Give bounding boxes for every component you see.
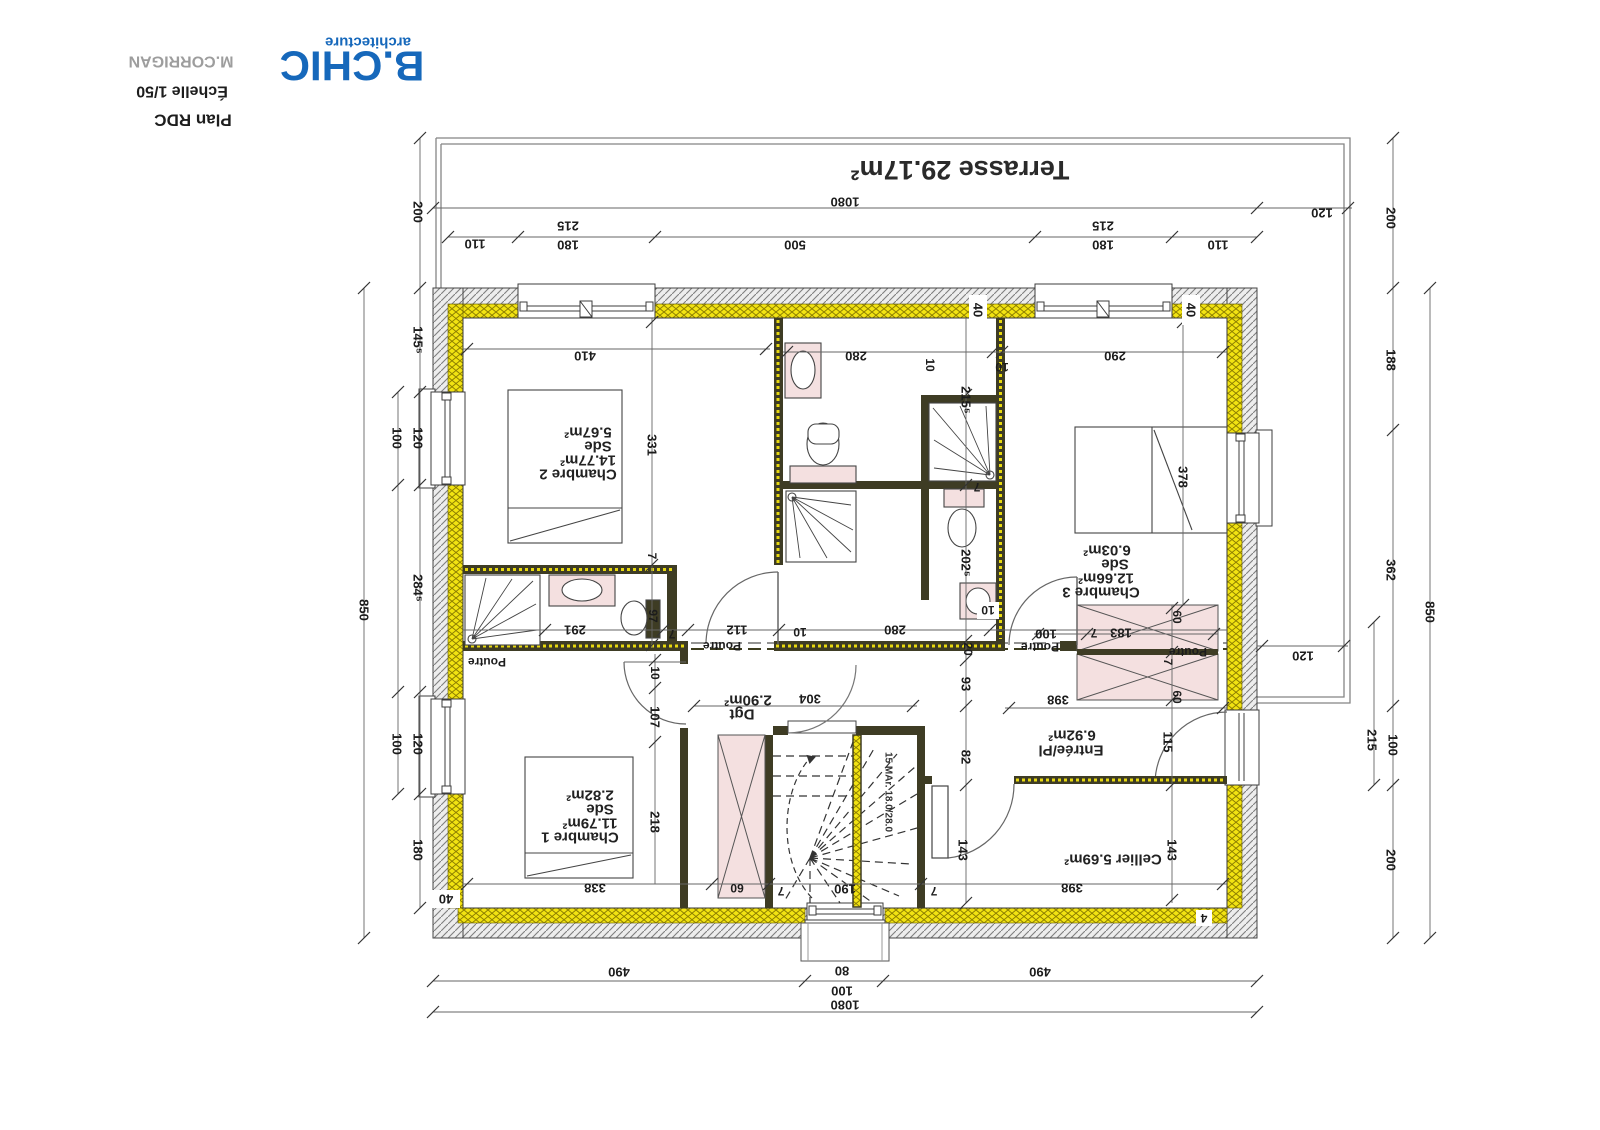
dim: 331	[645, 434, 660, 456]
dim: 10	[648, 666, 662, 680]
shower-central	[786, 491, 856, 562]
dim: 40	[439, 892, 453, 907]
closet-entree-lower	[1077, 654, 1218, 700]
dim: 100	[831, 984, 853, 999]
svg-text:Chambre 3: Chambre 3	[1062, 584, 1140, 601]
dim: 40	[971, 303, 986, 317]
room-label-entree: 6.92m² Entrée/Pl	[1038, 727, 1103, 759]
dim: 280	[884, 623, 906, 638]
vanity-sde2	[549, 575, 615, 606]
dim: 115	[1161, 732, 1176, 753]
beam-label: Poutre	[468, 655, 506, 669]
scanned-floor-plan-page: 15 MAr. 18.0/28.0	[0, 0, 1600, 1130]
dim: 202⁵	[959, 549, 974, 577]
dim: 80	[835, 964, 849, 979]
dim: 60	[1170, 690, 1184, 704]
stair-spine-wall	[853, 735, 861, 907]
svg-text:Chambre 2: Chambre 2	[539, 466, 617, 483]
dim: 188	[1384, 349, 1399, 371]
dim: 215⁵	[959, 386, 974, 414]
dim-top-120: 120	[1311, 206, 1333, 221]
stair-walk-line	[787, 758, 812, 898]
dim: 7	[930, 884, 937, 898]
dim: 1080	[831, 998, 860, 1013]
bed-chambre3	[1075, 427, 1227, 533]
toilet-sde3	[944, 489, 984, 547]
dim: 10	[793, 625, 807, 639]
room-label-terrasse: Terrasse 29.17m²	[851, 155, 1070, 185]
closet-hall	[718, 735, 765, 898]
dim: 143	[1165, 839, 1180, 861]
beam-label: Poutre	[703, 639, 741, 653]
dim: 362	[1384, 559, 1399, 581]
stair-door-leaf	[788, 721, 856, 733]
dim: 60	[730, 881, 744, 895]
dim: 120	[1292, 649, 1314, 664]
dim: 180	[1092, 238, 1114, 253]
dim: 291	[564, 623, 586, 638]
dim: 215	[1092, 219, 1114, 234]
entrance-door-bottom	[801, 903, 889, 961]
shower-sde3	[929, 403, 996, 481]
partition-chambre1-right	[680, 728, 688, 908]
dim: 97	[646, 609, 660, 623]
dim: 107	[648, 706, 663, 728]
scale-label: Échelle 1/50	[136, 83, 228, 102]
client-name: M.CORRIGAN	[129, 53, 234, 70]
dim: 850	[1423, 601, 1438, 623]
dim: 4	[1200, 911, 1207, 925]
beam-label: Poutre	[1021, 640, 1059, 654]
dim: 190	[834, 882, 856, 897]
window-top-right	[1035, 284, 1172, 318]
dim: 378	[1176, 466, 1191, 488]
dim: 20	[961, 642, 975, 656]
dim: 180	[557, 238, 579, 253]
door-arcs	[624, 572, 1077, 858]
dim: 490	[1029, 965, 1051, 980]
dim: 7	[973, 480, 980, 494]
dim: 398	[1061, 881, 1083, 896]
dim: 7	[668, 627, 675, 641]
dim: 110	[1208, 238, 1229, 253]
svg-text:6.92m²: 6.92m²	[1048, 727, 1096, 744]
room-label-chambre3: 6.03m² Sde 12.66m² Chambre 3	[1062, 542, 1140, 601]
vanity-central	[785, 343, 821, 398]
window-right	[1225, 430, 1272, 526]
dim: 304	[798, 692, 820, 707]
plan-title: Plan RDC	[154, 111, 231, 130]
dim: 110	[465, 237, 486, 252]
dim: 60	[1170, 610, 1184, 624]
dim: 100	[390, 427, 405, 449]
dim: 410	[574, 349, 596, 364]
dim: 398	[1047, 693, 1069, 708]
window-top-left	[518, 284, 655, 318]
dim: 215	[557, 219, 579, 234]
dim: 180	[411, 839, 426, 861]
room-label-cellier: Cellier 5.69m²	[1064, 851, 1162, 868]
dim: 40	[1184, 303, 1199, 317]
floor-plan-canvas: 15 MAr. 18.0/28.0	[0, 0, 1600, 1130]
dim: 145⁵	[411, 326, 426, 354]
dim: 290	[1104, 349, 1126, 364]
dim: 850	[357, 599, 372, 621]
room-label-dgt: 2.90m² Dgt	[724, 692, 772, 723]
dim-top-1080: 1080	[831, 195, 860, 210]
dim: 143	[956, 839, 971, 861]
dim: 200	[1384, 849, 1399, 871]
dim: 280	[845, 349, 867, 364]
title-block: architecture B.CHIC M.CORRIGAN Échelle 1…	[129, 34, 425, 130]
dim: 120	[411, 427, 426, 449]
dim: 120	[411, 733, 426, 755]
dim: 100	[1386, 734, 1401, 756]
dim: 93	[959, 677, 974, 691]
dim: 7	[645, 553, 659, 560]
dim: 10	[923, 358, 937, 372]
dim: 100	[390, 733, 405, 755]
dim: 10	[981, 603, 995, 617]
dim: 200	[1384, 207, 1399, 229]
toilet-central	[790, 423, 856, 483]
dim: 10	[995, 360, 1009, 374]
dim: 218	[648, 811, 663, 833]
dim: 215	[1365, 729, 1380, 751]
dim: 112	[727, 623, 748, 638]
dim: 183	[1110, 626, 1132, 641]
dim: 200	[411, 201, 426, 223]
dim: 490	[608, 965, 630, 980]
dim: 7	[1090, 626, 1097, 640]
dim: 500	[784, 238, 806, 253]
svg-text:Chambre 1: Chambre 1	[541, 829, 619, 846]
dim: 100	[1035, 627, 1057, 642]
svg-text:Entrée/Pl: Entrée/Pl	[1038, 742, 1103, 759]
logo-bchic: B.CHIC	[280, 43, 425, 90]
dim: 284⁵	[411, 574, 426, 602]
svg-text:Dgt: Dgt	[730, 706, 755, 723]
dim: 7	[777, 884, 784, 898]
beam-label: Poutre	[1169, 645, 1207, 659]
dim: 82	[959, 750, 974, 764]
dim: 338	[584, 881, 606, 896]
staircase: 15 MAr. 18.0/28.0	[773, 721, 917, 907]
shower-sde2	[465, 575, 540, 645]
stair-note: 15 MAr. 18.0/28.0	[883, 752, 894, 832]
partition-stair-left	[765, 735, 773, 908]
